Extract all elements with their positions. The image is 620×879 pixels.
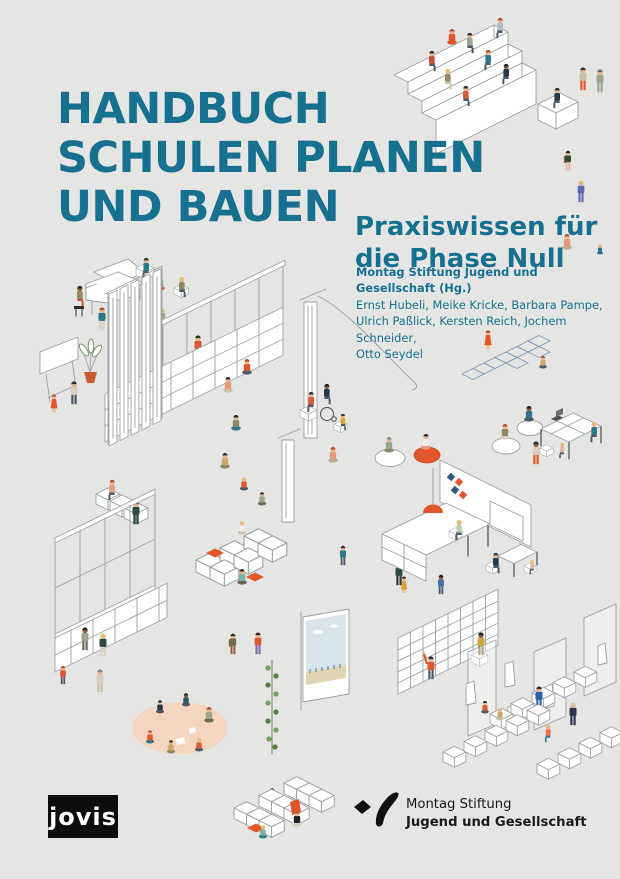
illustration-group-tables xyxy=(492,406,601,464)
illustration-seating-blocks-bottom xyxy=(234,777,334,839)
illustration-reading-rug xyxy=(132,693,228,754)
illustration-window-bench xyxy=(55,483,167,672)
editor-line: Montag Stiftung Jugend und Gesellschaft … xyxy=(356,264,620,297)
illustration-strolling-pair xyxy=(229,633,262,655)
subtitle-line-1: Praxiswissen für xyxy=(355,211,597,244)
illustration-whiteboard-easel xyxy=(40,337,78,412)
illustration-curtains-left xyxy=(109,269,161,446)
illustration-floor-sitters xyxy=(220,359,266,506)
publisher-logo: jovis xyxy=(48,795,118,838)
title-line-1: HANDBUCH xyxy=(57,85,485,134)
authors-line-2: Ulrich Paßlick, Kersten Reich, Jochem Sc… xyxy=(356,313,620,346)
foundation-logo-icon xyxy=(354,792,399,826)
illustration-potted-plant xyxy=(78,339,104,383)
illustration-small-table xyxy=(486,545,537,577)
credits-block: Montag Stiftung Jugend und Gesellschaft … xyxy=(356,264,620,362)
authors-line-3: Otto Seydel xyxy=(356,346,620,362)
illustration-soft-blocks xyxy=(196,521,287,586)
book-cover: HANDBUCH SCHULEN PLANEN UND BAUEN Praxis… xyxy=(0,0,620,879)
foundation-name-line-2: Jugend und Gesellschaft xyxy=(406,816,587,829)
authors-line-1: Ernst Hubeli, Meike Kricke, Barbara Pamp… xyxy=(356,297,620,313)
illustration-projection-screen xyxy=(301,609,349,710)
publisher-logo-text: jovis xyxy=(49,805,117,829)
foundation-name-line-1: Montag Stiftung xyxy=(406,798,512,811)
illustration-climbing-plant xyxy=(265,660,278,754)
illustration-window-shelf-wall xyxy=(105,206,285,448)
title-line-2: SCHULEN PLANEN xyxy=(57,134,485,183)
